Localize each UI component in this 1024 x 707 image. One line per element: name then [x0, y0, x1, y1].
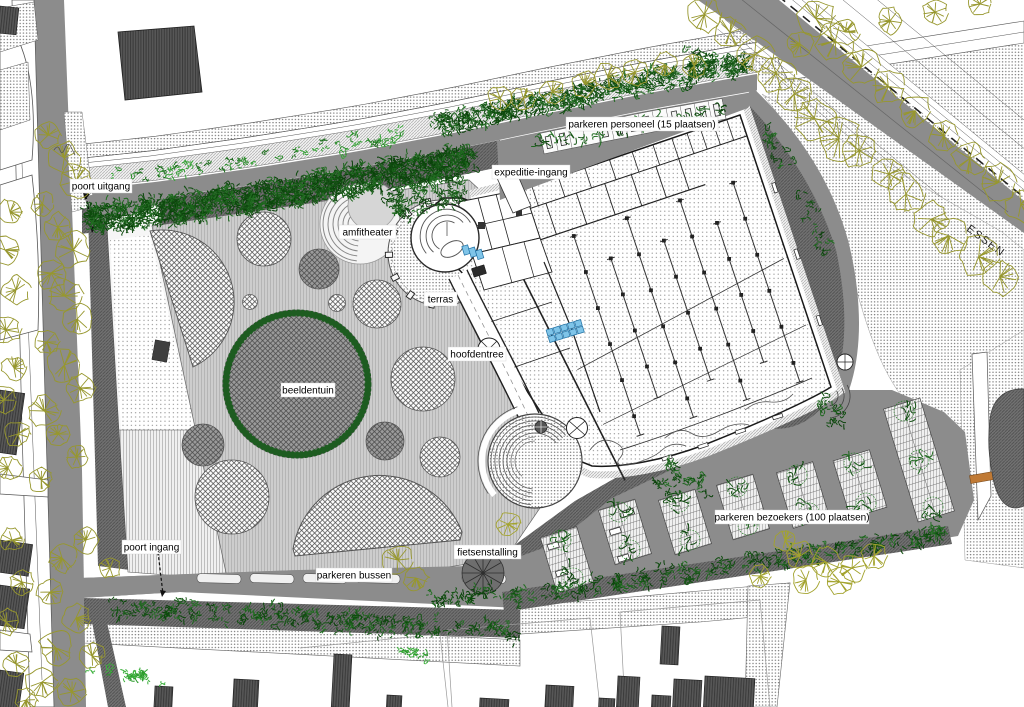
svg-text:poort ingang: poort ingang	[124, 542, 180, 553]
svg-text:parkeren personeel (15 plaatse: parkeren personeel (15 plaatsen)	[568, 119, 715, 130]
svg-text:terras: terras	[428, 294, 454, 305]
svg-text:poort uitgang: poort uitgang	[72, 181, 130, 192]
svg-text:fietsenstalling: fietsenstalling	[457, 547, 518, 558]
svg-text:parkeren bussen: parkeren bussen	[317, 570, 392, 581]
svg-text:amfitheater: amfitheater	[342, 227, 393, 238]
svg-text:beeldentuin: beeldentuin	[282, 385, 334, 396]
svg-text:hoofdentree: hoofdentree	[450, 349, 504, 360]
svg-text:expeditie-ingang: expeditie-ingang	[494, 167, 567, 178]
svg-text:parkeren bezoekers (100 plaats: parkeren bezoekers (100 plaatsen)	[714, 512, 869, 523]
